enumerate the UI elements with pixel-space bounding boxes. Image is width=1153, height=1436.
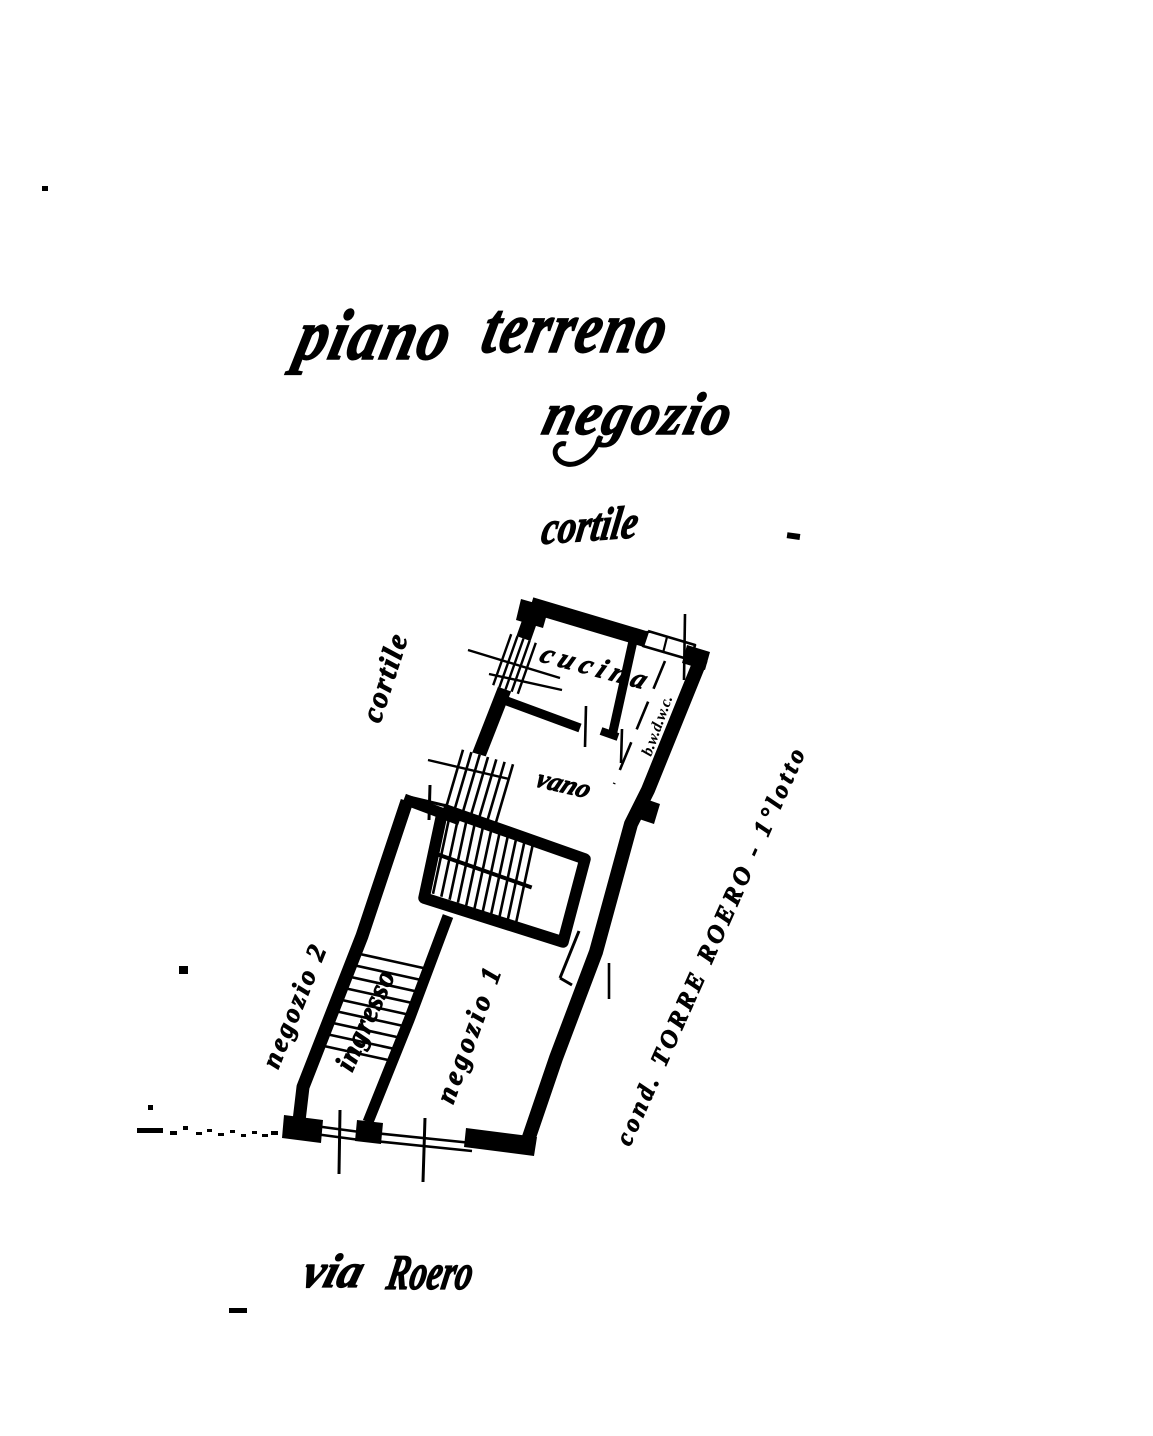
svg-text:terreno: terreno — [475, 289, 677, 368]
svg-text:Roero: Roero — [382, 1245, 479, 1300]
svg-text:cortile: cortile — [538, 497, 642, 555]
svg-text:piano: piano — [285, 295, 462, 375]
svg-text:negozio: negozio — [536, 381, 741, 447]
